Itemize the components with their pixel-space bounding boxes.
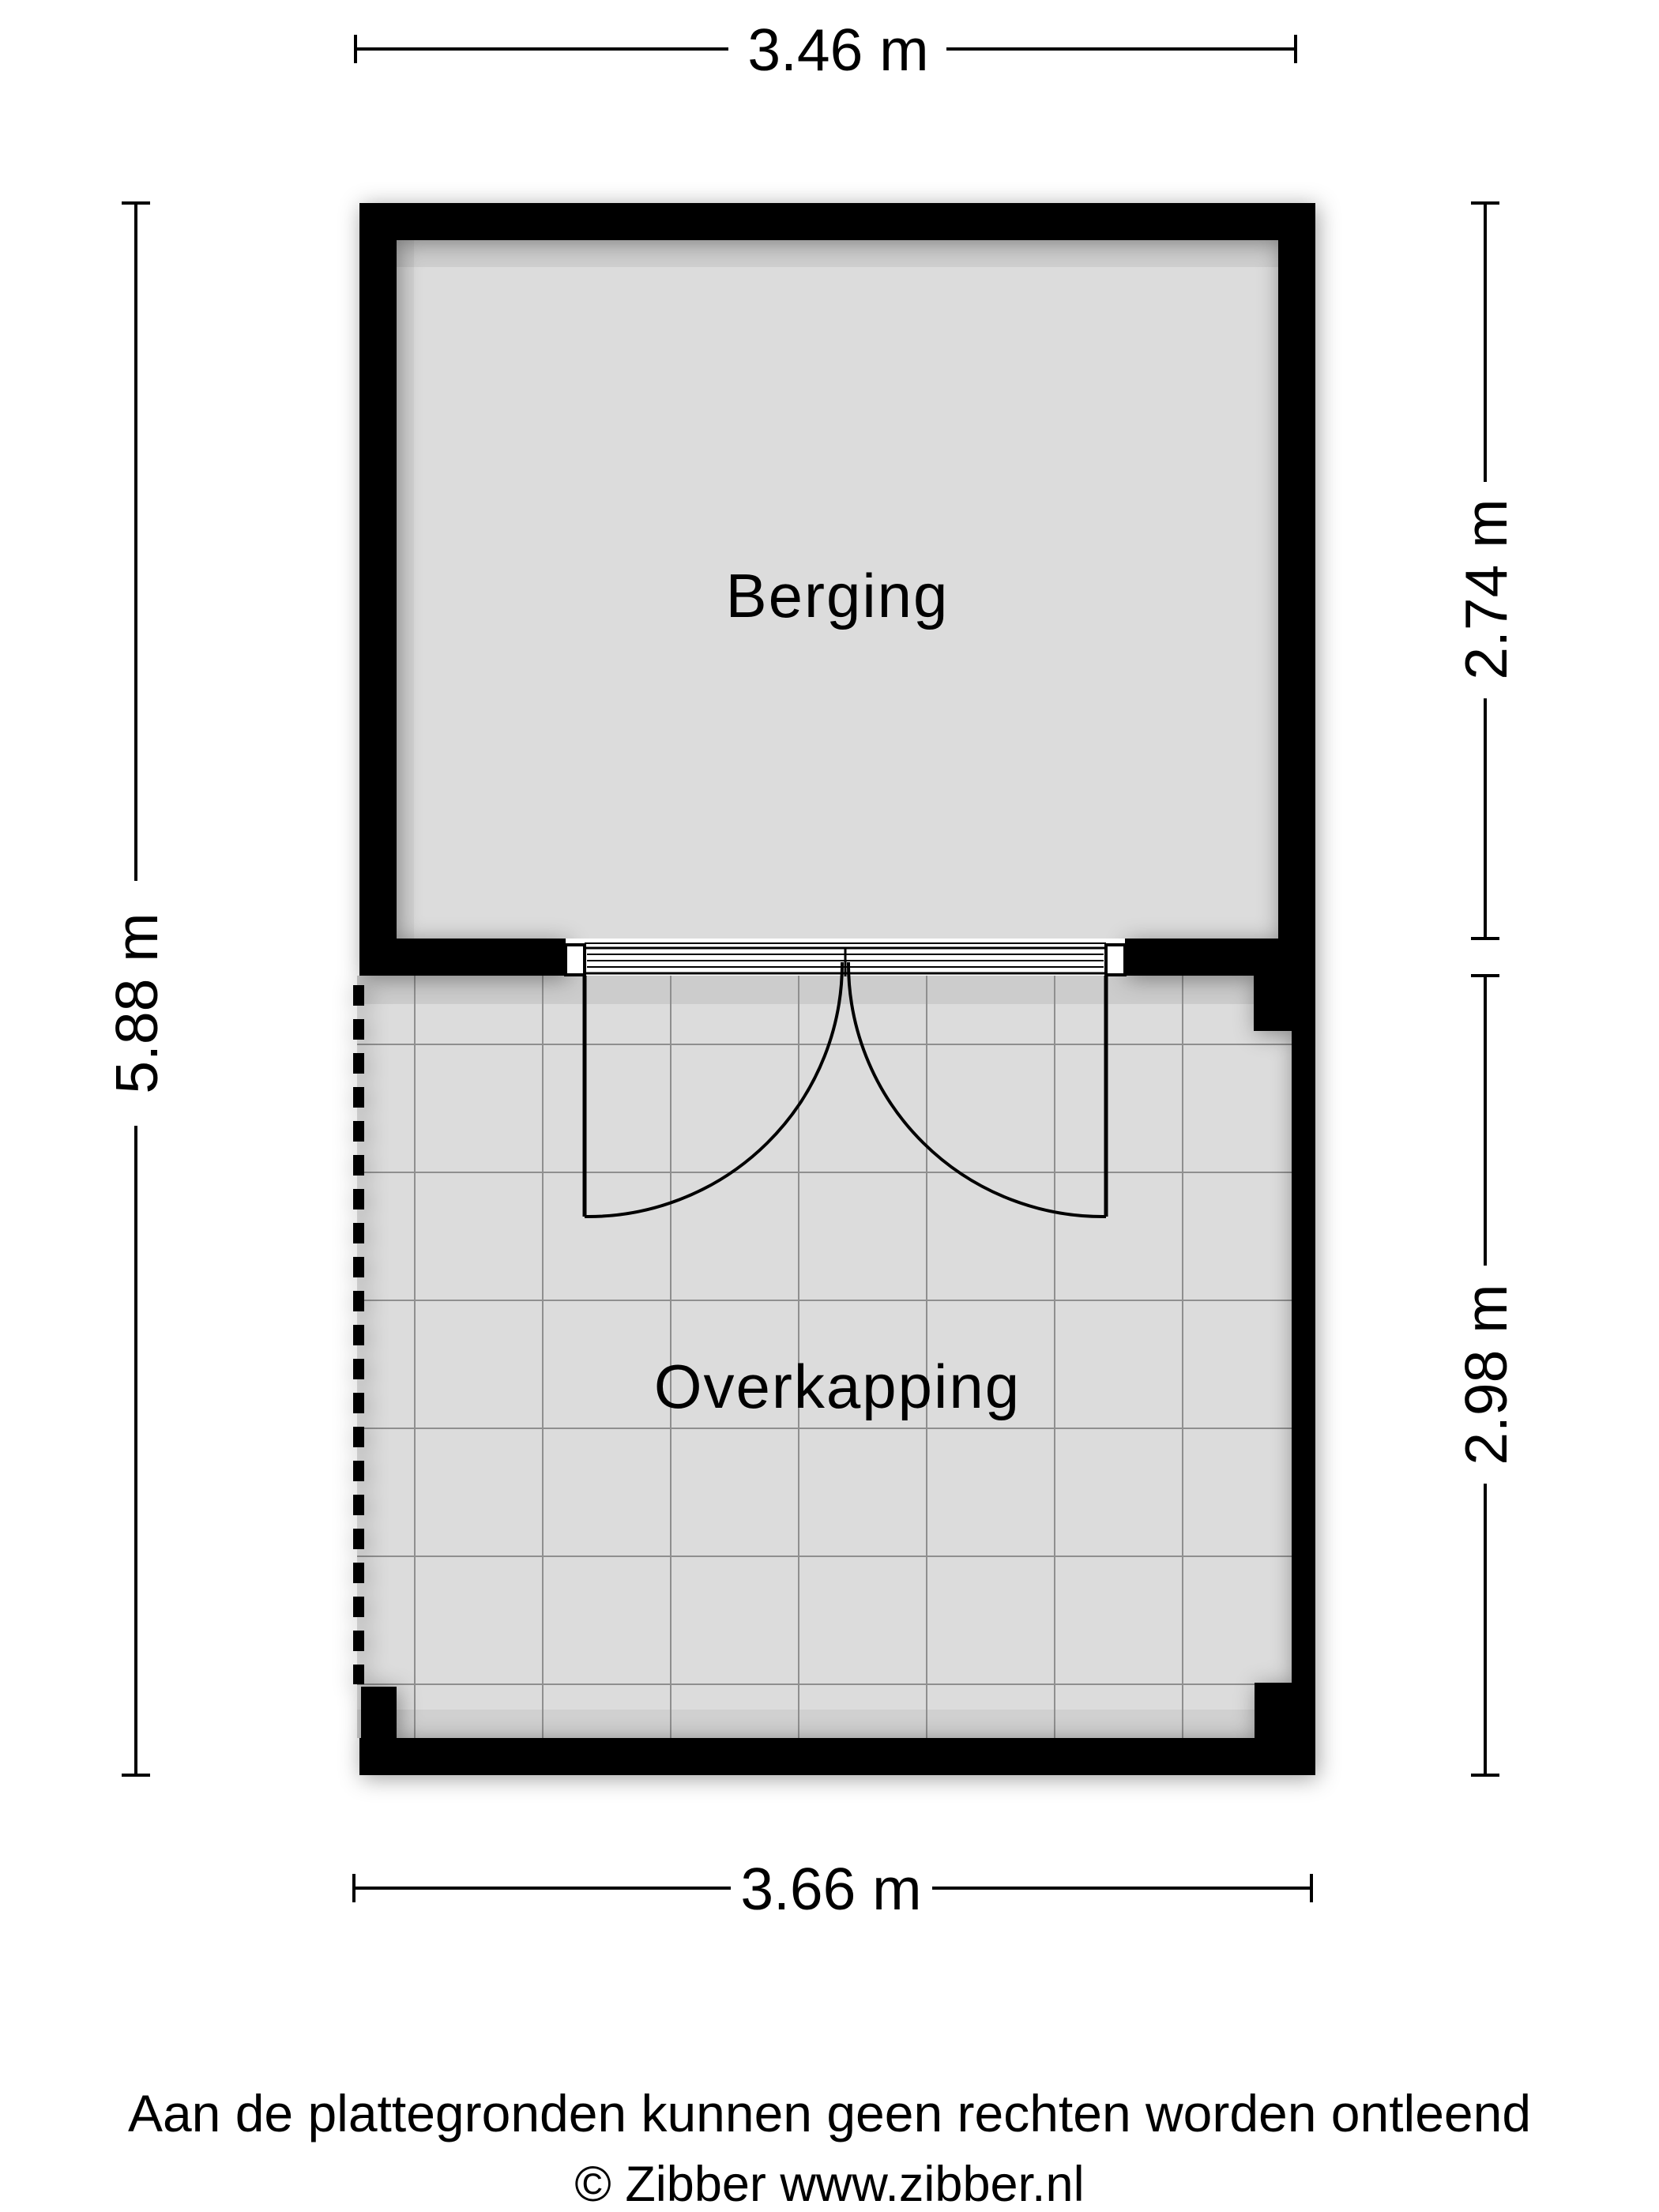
- berging-inner-shadow-left: [397, 240, 414, 939]
- berging-label: Berging: [726, 561, 950, 630]
- dimension-right-bottom-label: 2.98 m: [1453, 1284, 1519, 1465]
- column-right-bottom: [1255, 1683, 1315, 1738]
- overkapping-inner-shadow: [357, 976, 1292, 1004]
- dimension-left-label: 5.88 m: [103, 912, 170, 1093]
- overkapping-label: Overkapping: [654, 1352, 1021, 1421]
- wall-top: [359, 203, 1315, 240]
- overkapping-bottom-shadow: [357, 1710, 1292, 1738]
- floorplan-page: Berging Overkapping 3.46 m 5.88 m 2.74 m…: [0, 0, 1659, 2212]
- room-floors: [357, 240, 1292, 1738]
- wall-bottom: [359, 1738, 1315, 1775]
- wall-left-berging: [359, 203, 397, 976]
- dimension-right-bottom: 2.98 m: [1453, 976, 1519, 1775]
- wall-right-berging: [1278, 203, 1315, 976]
- wall-right-overkapping: [1292, 976, 1315, 1738]
- dimension-left: 5.88 m: [103, 203, 170, 1775]
- dimension-right-top-label: 2.74 m: [1453, 498, 1519, 679]
- dimension-top-label: 3.46 m: [747, 17, 928, 83]
- footer-disclaimer: Aan de plattegronden kunnen geen rechten…: [128, 2084, 1531, 2142]
- door-jamb-left: [566, 945, 585, 975]
- column-right-top: [1254, 976, 1315, 1031]
- column-left-bottom: [361, 1687, 397, 1738]
- dimension-bottom-label: 3.66 m: [740, 1856, 921, 1922]
- dimension-top: 3.46 m: [355, 17, 1296, 83]
- dimension-bottom: 3.66 m: [354, 1856, 1311, 1922]
- footer-copyright: © Zibber www.zibber.nl: [574, 2157, 1084, 2212]
- wall-divider-left: [359, 939, 566, 976]
- door-jamb-right: [1106, 945, 1125, 975]
- berging-inner-shadow: [397, 240, 1278, 267]
- floorplan-drawing: Berging Overkapping 3.46 m 5.88 m 2.74 m…: [0, 0, 1659, 2212]
- wall-divider-right: [1125, 939, 1315, 976]
- dimension-right-top: 2.74 m: [1453, 203, 1519, 939]
